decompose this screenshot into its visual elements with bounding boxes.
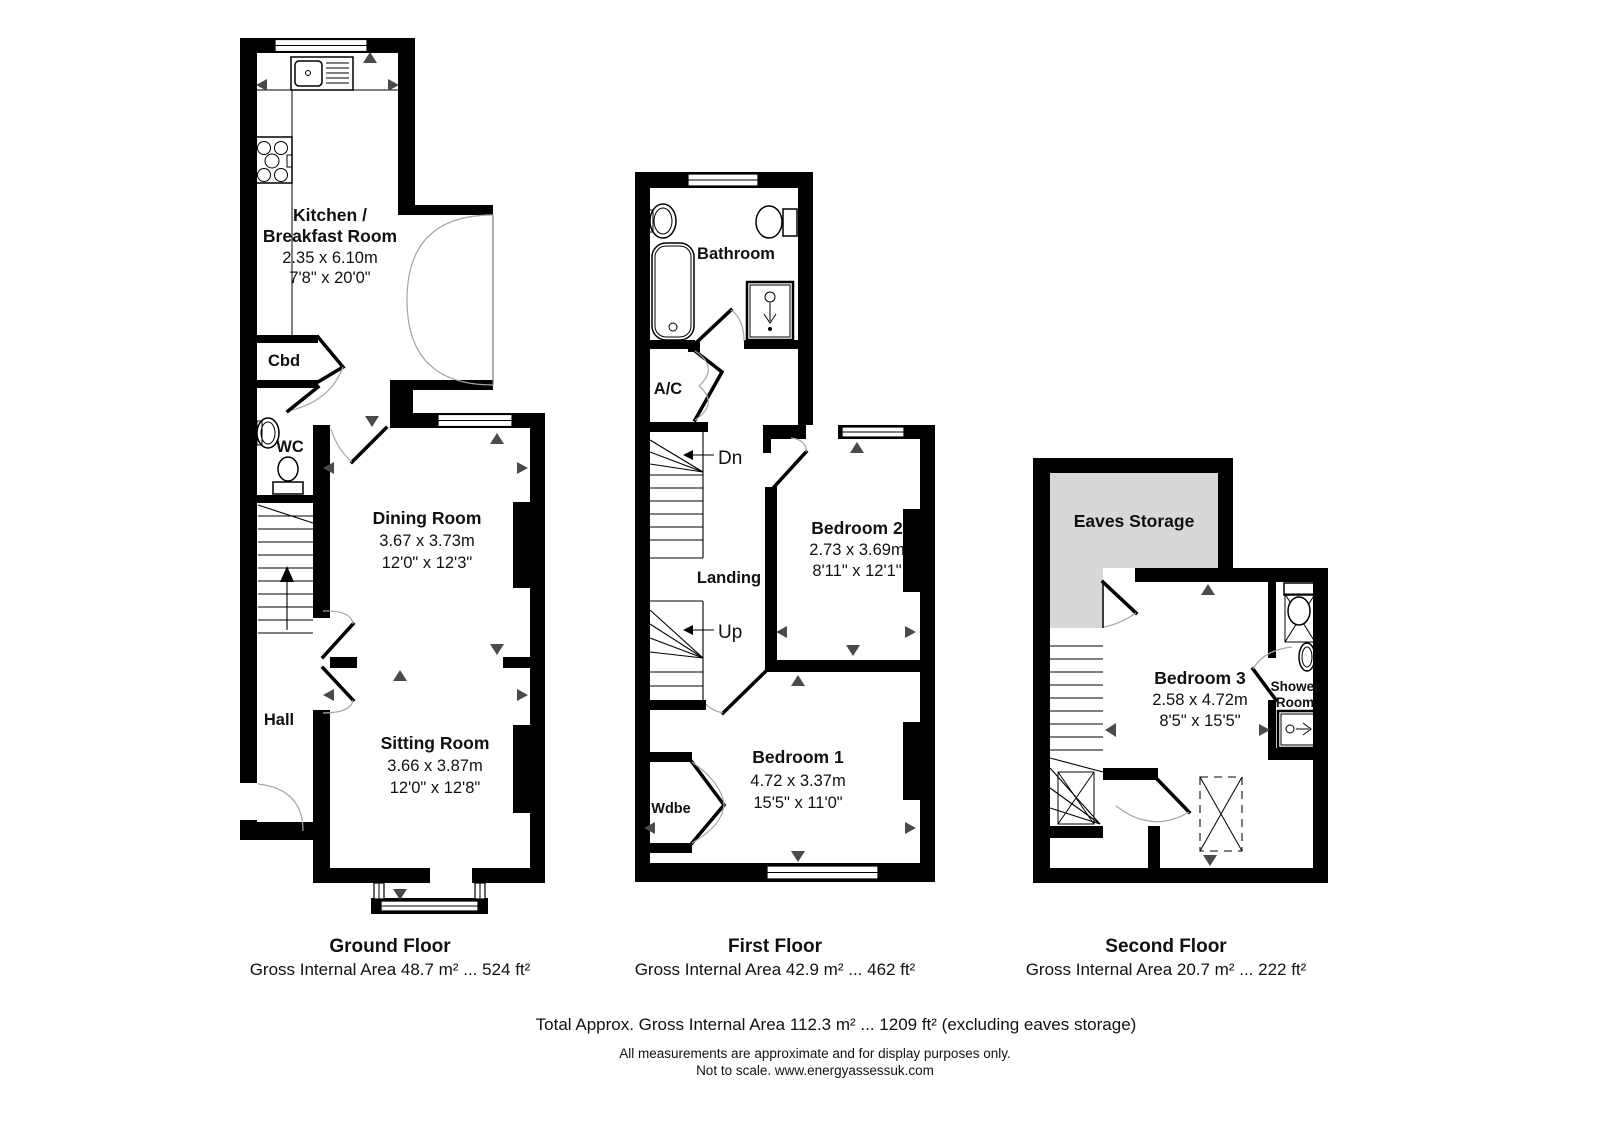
eaves-storage-area	[1050, 473, 1218, 628]
bedroom1-dims-m: 4.72 x 3.37m	[750, 772, 845, 790]
first-floor-area: Gross Internal Area 42.9 m² ... 462 ft²	[575, 959, 975, 981]
wdbe-label: Wdbe	[651, 801, 690, 817]
second-floor-plan: Eaves Storage Bedroom 3 2.58 x 4.72m 8'5…	[1010, 445, 1335, 890]
second-stairs-icon	[1050, 646, 1103, 824]
wc-toilet-icon	[273, 457, 303, 494]
shower-icon	[747, 282, 793, 340]
sink-icon	[291, 57, 353, 90]
dining-label: Dining Room	[373, 508, 482, 528]
first-floor-plan: Bathroom A/C Dn Landing Up Bedroom 2 2.7…	[615, 165, 950, 890]
floorplan-page: Kitchen / Breakfast Room 2.35 x 6.10m 7'…	[0, 0, 1600, 1131]
dining-dims-ft: 12'0" x 12'3"	[382, 554, 473, 572]
shower-room-toilet-icon	[1284, 583, 1316, 642]
up-label: Up	[718, 622, 742, 643]
bedroom1-label: Bedroom 1	[752, 747, 844, 767]
bathroom-basin-icon	[649, 204, 676, 238]
skylight-icon	[1200, 777, 1242, 851]
shower-room-label: Shower	[1271, 679, 1321, 694]
ground-floor-caption: Ground Floor Gross Internal Area 48.7 m²…	[190, 935, 590, 981]
kitchen-dims-ft: 7'8" x 20'0"	[289, 269, 370, 287]
shower-room-label-2: Room	[1276, 695, 1314, 710]
total-area-note: Total Approx. Gross Internal Area 112.3 …	[436, 1015, 1236, 1035]
stairs-up-icon	[650, 601, 714, 700]
cbd-label: Cbd	[268, 352, 300, 370]
hall-label: Hall	[264, 711, 294, 729]
disclaimer: All measurements are approximate and for…	[415, 1045, 1215, 1079]
bedroom3-dims-ft: 8'5" x 15'5"	[1159, 712, 1240, 730]
kitchen-label: Kitchen /	[293, 205, 367, 225]
landing-label: Landing	[697, 569, 761, 587]
sitting-dims-m: 3.66 x 3.87m	[387, 757, 482, 775]
stairs-down-icon	[650, 425, 714, 558]
ground-floor-area: Gross Internal Area 48.7 m² ... 524 ft²	[190, 959, 590, 981]
ac-label: A/C	[654, 380, 683, 398]
bedroom2-dims-ft: 8'11" x 12'1"	[812, 562, 901, 580]
second-floor-title: Second Floor	[966, 935, 1366, 959]
first-floor-title: First Floor	[575, 935, 975, 959]
first-floor-caption: First Floor Gross Internal Area 42.9 m² …	[575, 935, 975, 981]
hob-icon	[255, 137, 292, 183]
bedroom3-dims-m: 2.58 x 4.72m	[1152, 691, 1247, 709]
bedroom2-dims-m: 2.73 x 3.69m	[809, 541, 904, 559]
bathroom-label: Bathroom	[697, 245, 775, 263]
second-floor-area: Gross Internal Area 20.7 m² ... 222 ft²	[966, 959, 1366, 981]
shower-room-basin-icon	[1299, 643, 1315, 671]
eaves-label: Eaves Storage	[1074, 511, 1195, 531]
scale-note: Not to scale. www.energyassessuk.com	[415, 1062, 1215, 1079]
first-room-labels: Bathroom A/C Dn Landing Up Bedroom 2 2.7…	[651, 245, 904, 817]
sitting-label: Sitting Room	[381, 733, 490, 753]
kitchen-dims-m: 2.35 x 6.10m	[282, 249, 377, 267]
wc-label: WC	[276, 438, 304, 456]
bedroom1-dims-ft: 15'5" x 11'0"	[753, 794, 842, 812]
ground-stairs-icon	[258, 505, 313, 633]
bathroom-toilet-icon	[756, 206, 797, 238]
sitting-dims-ft: 12'0" x 12'8"	[390, 779, 481, 797]
kitchen-label-2: Breakfast Room	[263, 226, 397, 246]
ground-floor-plan: Kitchen / Breakfast Room 2.35 x 6.10m 7'…	[230, 25, 550, 920]
bath-icon	[652, 243, 694, 340]
bedroom2-label: Bedroom 2	[811, 518, 903, 538]
dn-label: Dn	[718, 448, 742, 469]
ground-floor-title: Ground Floor	[190, 935, 590, 959]
dining-dims-m: 3.67 x 3.73m	[379, 532, 474, 550]
second-floor-caption: Second Floor Gross Internal Area 20.7 m²…	[966, 935, 1366, 981]
disclaimer-line: All measurements are approximate and for…	[415, 1045, 1215, 1062]
bedroom3-label: Bedroom 3	[1154, 668, 1246, 688]
